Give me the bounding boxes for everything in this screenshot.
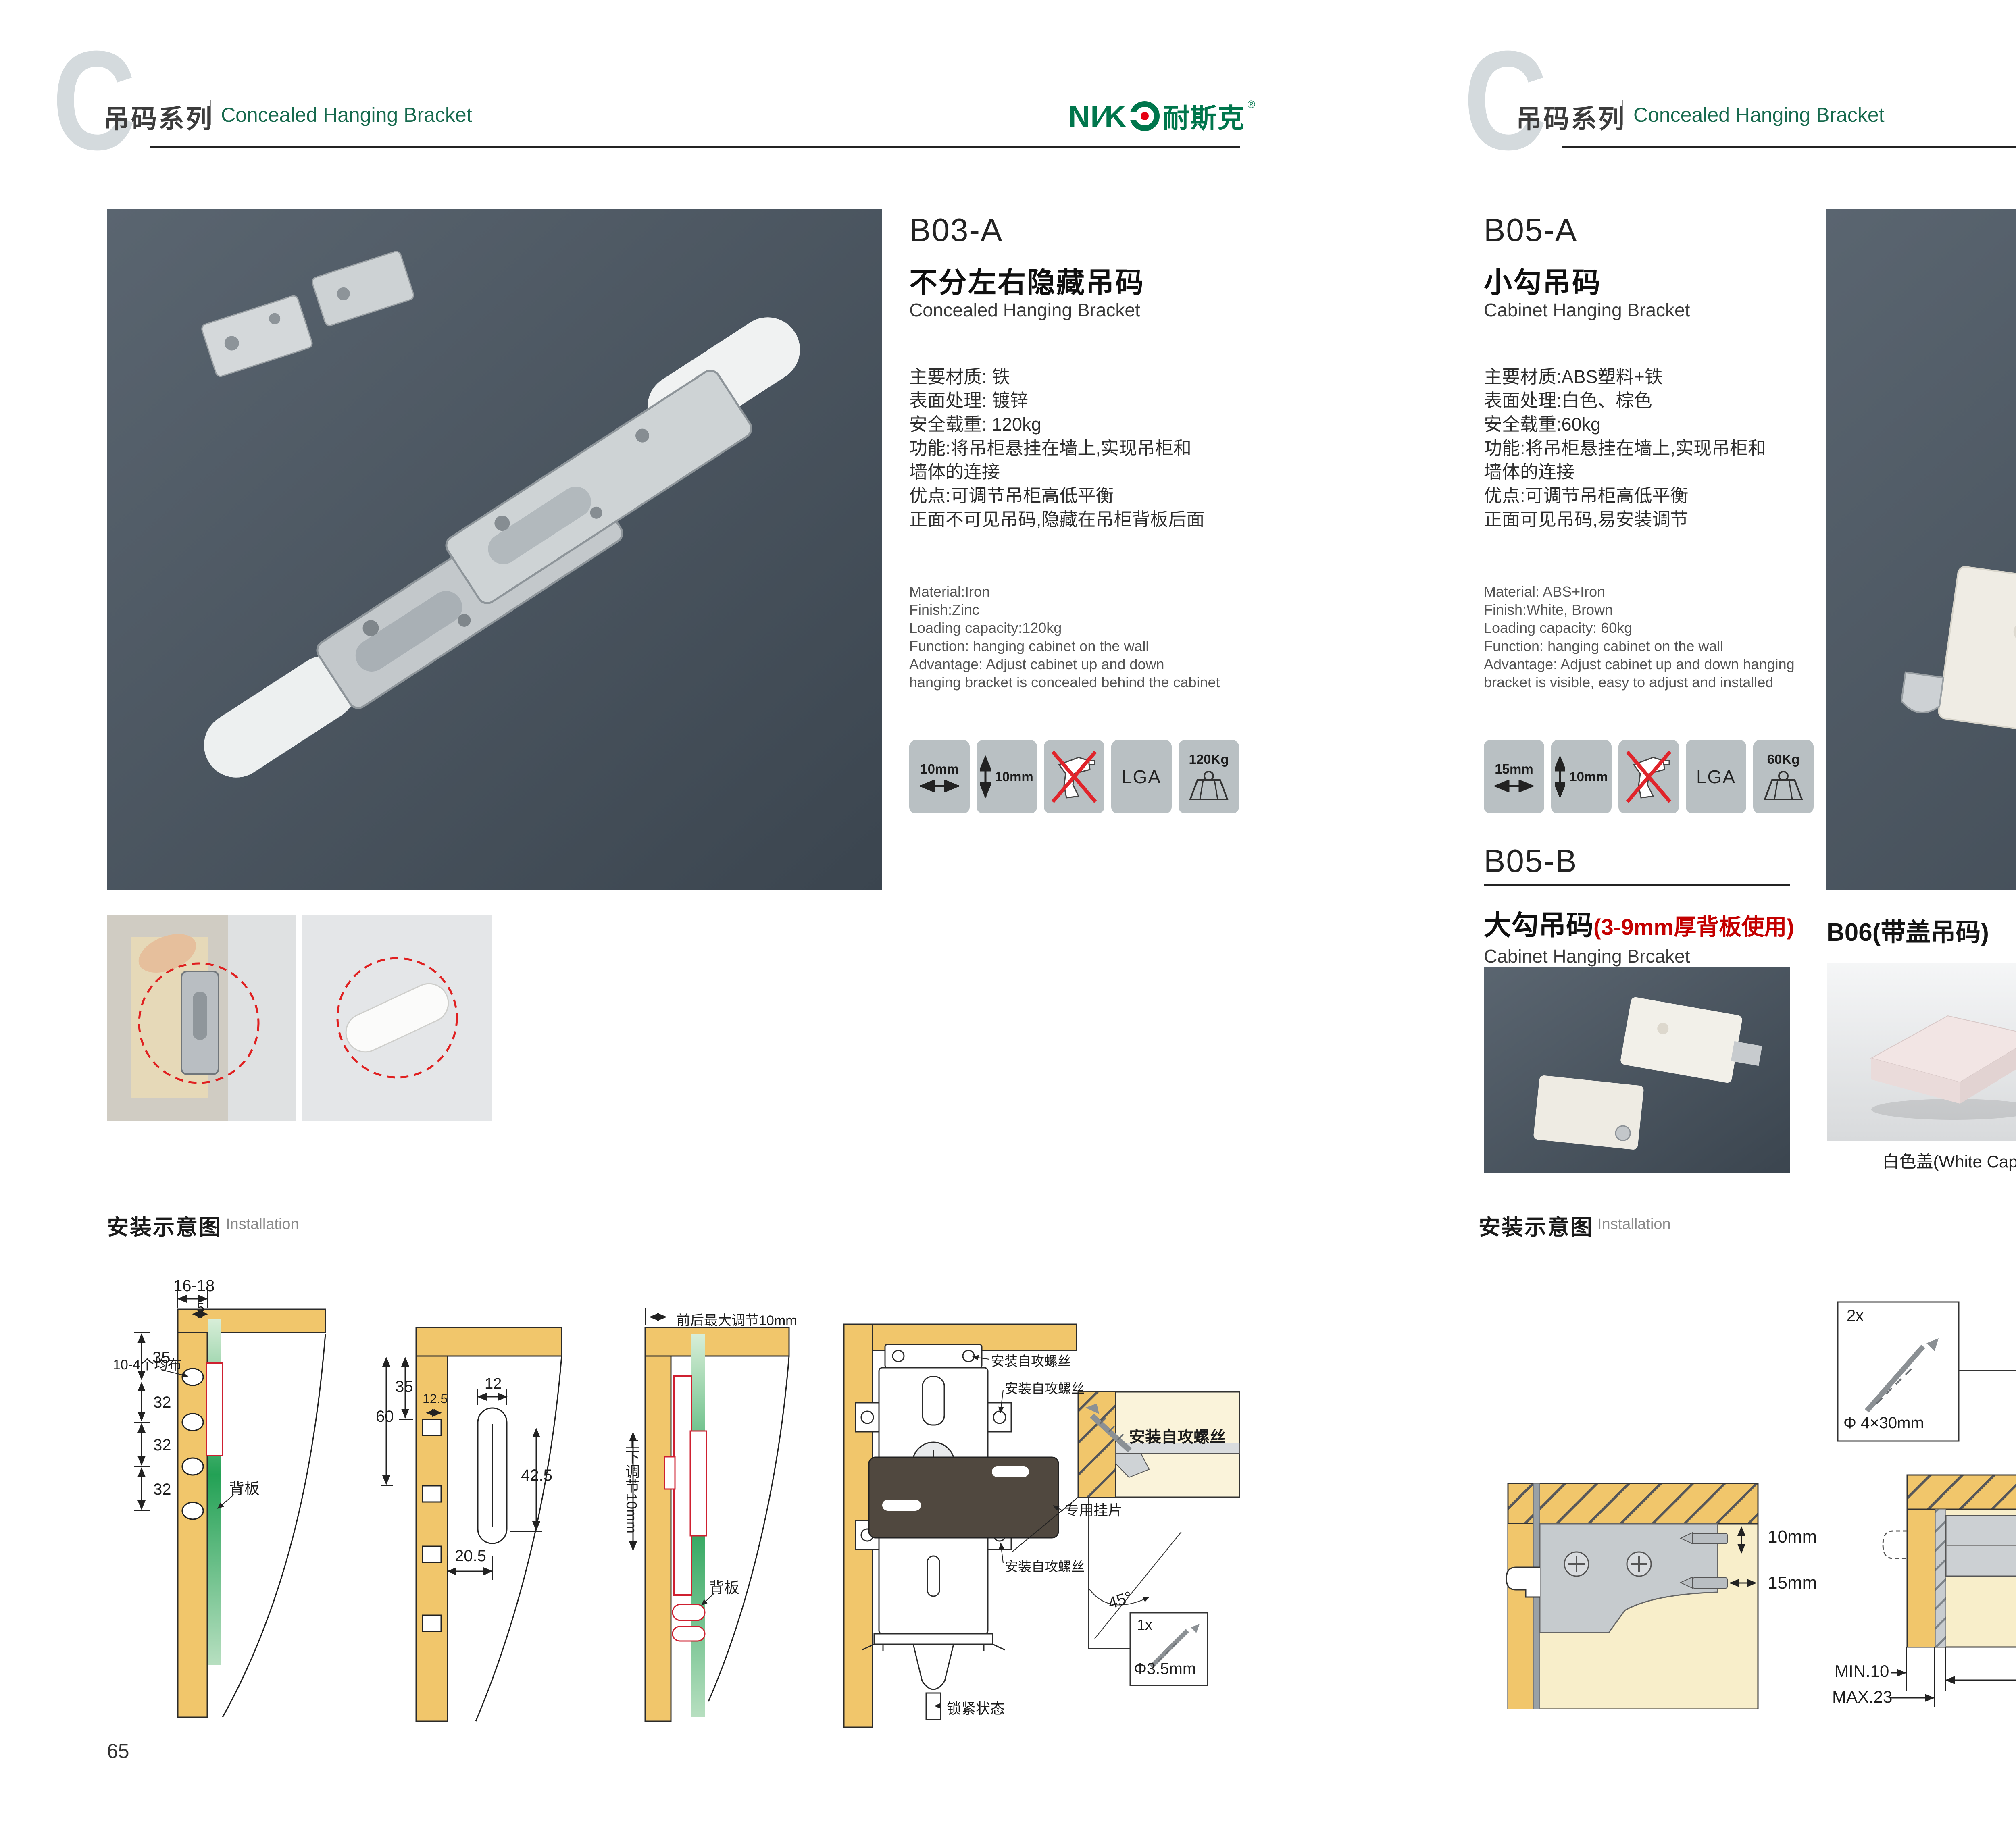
- icon-no-drill: [1044, 740, 1104, 813]
- dim-60: 60: [376, 1408, 394, 1426]
- dim-20-5: 20.5: [455, 1547, 486, 1565]
- specs-cn: 主要材质: 铁表面处理: 镀锌 安全载重: 120kg功能:将吊柜悬挂在墙上,实…: [909, 365, 1205, 531]
- hanging-plate-label: 专用挂片: [1064, 1499, 1123, 1520]
- screw-note-3: 安装自攻螺丝: [1005, 1556, 1085, 1575]
- icon-load: 120Kg: [1179, 740, 1239, 813]
- product-code-b05b: B05-B: [1484, 842, 1577, 880]
- dim-5: 5: [197, 1300, 204, 1316]
- cap-label-white: 白色盖(White Cap): [1827, 1148, 2016, 1173]
- brand-reg: ®: [1248, 98, 1255, 111]
- diagram-side-slot: 60 35 12.5 12 42.5 20.5: [375, 1274, 569, 1725]
- brand-cn: 耐斯克: [1163, 97, 1245, 135]
- dim-35: 35: [395, 1378, 413, 1396]
- diagram-bracket-detail: 安装自攻螺丝 安装自攻螺丝 安装自攻螺丝 专用挂片 锁紧状态 安装自攻螺丝 45…: [831, 1274, 1290, 1741]
- diagram-d3-drawing: [621, 1274, 823, 1725]
- page-number: 65: [107, 1739, 129, 1763]
- icon-width: 10mm: [909, 740, 970, 813]
- holes-note: 10-4个均布: [113, 1354, 181, 1373]
- specs-en: Material: ABS+IronFinish:White, Brown Lo…: [1484, 582, 1795, 691]
- product-name-en: Concealed Hanging Bracket: [909, 299, 1140, 321]
- backboard-label: 背板: [709, 1575, 739, 1597]
- screw-qty: 2x: [1847, 1307, 1864, 1325]
- icon-lga-label: LGA: [1696, 766, 1736, 788]
- icon-height-label: 10mm: [995, 769, 1033, 784]
- dim-max23: MAX.23: [1832, 1687, 1892, 1707]
- product-code: B03-A: [909, 212, 1003, 249]
- product-code: B05-A: [1484, 212, 1577, 249]
- icon-load-label: 60Kg: [1767, 752, 1800, 767]
- install-title-cn: 安装示意图: [107, 1209, 222, 1241]
- diagram-d4-drawing: [831, 1274, 1290, 1741]
- weight-icon: [1760, 770, 1807, 802]
- product-name-b05b: 大勾吊码(3-9mm厚背板使用): [1484, 903, 1794, 943]
- icon-width-label: 15mm: [1495, 761, 1533, 777]
- diagram-d2-drawing: [375, 1274, 569, 1725]
- vertical-arrow-icon: [1555, 753, 1565, 800]
- product-name-cn: 小勾吊码: [1484, 260, 1602, 301]
- dim-12-5: 12.5: [423, 1391, 448, 1406]
- icon-load: 60Kg: [1753, 740, 1814, 813]
- detail-screw-label: 安装自攻螺丝: [1129, 1424, 1226, 1447]
- locked-state-label: 锁紧状态: [947, 1697, 1005, 1718]
- header-divider: [1622, 100, 1623, 125]
- page-title-en: Concealed Hanging Bracket: [221, 103, 472, 127]
- dim-42-5: 42.5: [521, 1466, 552, 1485]
- no-drill-icon: [1625, 749, 1672, 805]
- screw-diameter: Φ3.5mm: [1134, 1660, 1196, 1678]
- product-name-en: Cabinet Hanging Bracket: [1484, 299, 1690, 321]
- header-rule: [1562, 146, 2016, 148]
- cap-photo-white: [1827, 963, 2016, 1141]
- icon-width: 15mm: [1484, 740, 1544, 813]
- specs-en: Material:IronFinish:Zinc Loading capacit…: [909, 582, 1220, 691]
- dim-10mm: 10mm: [1768, 1527, 1817, 1547]
- b06-title: B06(带盖吊码): [1826, 912, 1989, 948]
- header-rule: [150, 146, 1240, 148]
- page-title-cn: 吊码系列: [1516, 98, 1626, 135]
- header-divider: [210, 100, 211, 125]
- icon-height: 10mm: [977, 740, 1037, 813]
- catalog-spread: C 吊码系列 Concealed Hanging Bracket NI∕K 耐斯…: [0, 0, 2016, 1847]
- diagram-section-dims: 2x Φ 4×30mm 18 MIN.10 MAX.23 58: [1826, 1290, 2016, 1717]
- page-title-en: Concealed Hanging Bracket: [1633, 103, 1885, 127]
- icon-height-label: 10mm: [1569, 769, 1608, 784]
- icon-load-label: 120Kg: [1189, 752, 1229, 767]
- diagram-adjustment: 前后最大调节10mm 上下调节10mm 背板: [621, 1274, 823, 1725]
- screw-size: Φ 4×30mm: [1843, 1414, 1924, 1432]
- no-drill-icon: [1050, 749, 1098, 805]
- brand-logo: NI∕K 耐斯克 ®: [1068, 97, 1255, 135]
- icon-lga: LGA: [1111, 740, 1172, 813]
- product-photo-b05b: [1484, 967, 1790, 1173]
- b05b-name-note: (3-9mm厚背板使用): [1593, 914, 1794, 940]
- horizontal-arrow-icon: [917, 780, 962, 792]
- thumbnail-install-photo: [107, 915, 296, 1121]
- b05b-name-cn: 大勾吊码: [1484, 910, 1593, 941]
- dim-15mm: 15mm: [1768, 1573, 1817, 1593]
- dim-min10: MIN.10: [1835, 1662, 1889, 1681]
- product-photo-b05a: [1826, 209, 2016, 890]
- up-down-adjust-label: 上下调节10mm: [621, 1435, 642, 1533]
- thumbnail-cover-photo: [302, 915, 492, 1121]
- front-back-adjust-label: 前后最大调节10mm: [677, 1309, 797, 1329]
- dim-16-18: 16-18: [173, 1277, 215, 1295]
- screw-note-1: 安装自攻螺丝: [991, 1350, 1071, 1370]
- product-photo-b03a: [107, 209, 882, 890]
- icon-width-label: 10mm: [920, 761, 958, 777]
- diagram-r2-drawing: [1826, 1290, 2016, 1717]
- dim-32: 32: [153, 1394, 171, 1412]
- b05b-name-en: Cabinet Hanging Brcaket: [1484, 945, 1690, 967]
- icon-no-drill: [1618, 740, 1679, 813]
- screw-qty: 1x: [1137, 1616, 1152, 1633]
- weight-icon: [1185, 770, 1232, 802]
- brand-o-icon: [1129, 100, 1160, 132]
- dim-32: 32: [153, 1481, 171, 1499]
- icon-lga-label: LGA: [1122, 766, 1161, 788]
- page-title-cn: 吊码系列: [104, 98, 213, 135]
- product-name-cn: 不分左右隐藏吊码: [909, 260, 1145, 301]
- specs-cn: 主要材质:ABS塑料+铁表面处理:白色、棕色 安全载重:60kg功能:将吊柜悬挂…: [1484, 365, 1766, 531]
- icon-height: 10mm: [1551, 740, 1612, 813]
- install-title-en: Installation: [1597, 1216, 1671, 1233]
- horizontal-arrow-icon: [1491, 780, 1537, 792]
- diagram-bracket-adjust: 10mm 15mm: [1492, 1459, 1822, 1709]
- vertical-arrow-icon: [980, 753, 991, 800]
- icon-lga: LGA: [1686, 740, 1746, 813]
- dim-32: 32: [153, 1436, 171, 1454]
- brand-latin: NI∕K: [1068, 99, 1127, 133]
- screw-note-2: 安装自攻螺丝: [1005, 1378, 1085, 1397]
- install-title-en: Installation: [226, 1216, 299, 1233]
- backboard-label: 背板: [229, 1476, 260, 1498]
- install-title-cn: 安装示意图: [1479, 1209, 1593, 1241]
- dim-12: 12: [485, 1375, 502, 1393]
- b05b-rule: [1484, 884, 1790, 886]
